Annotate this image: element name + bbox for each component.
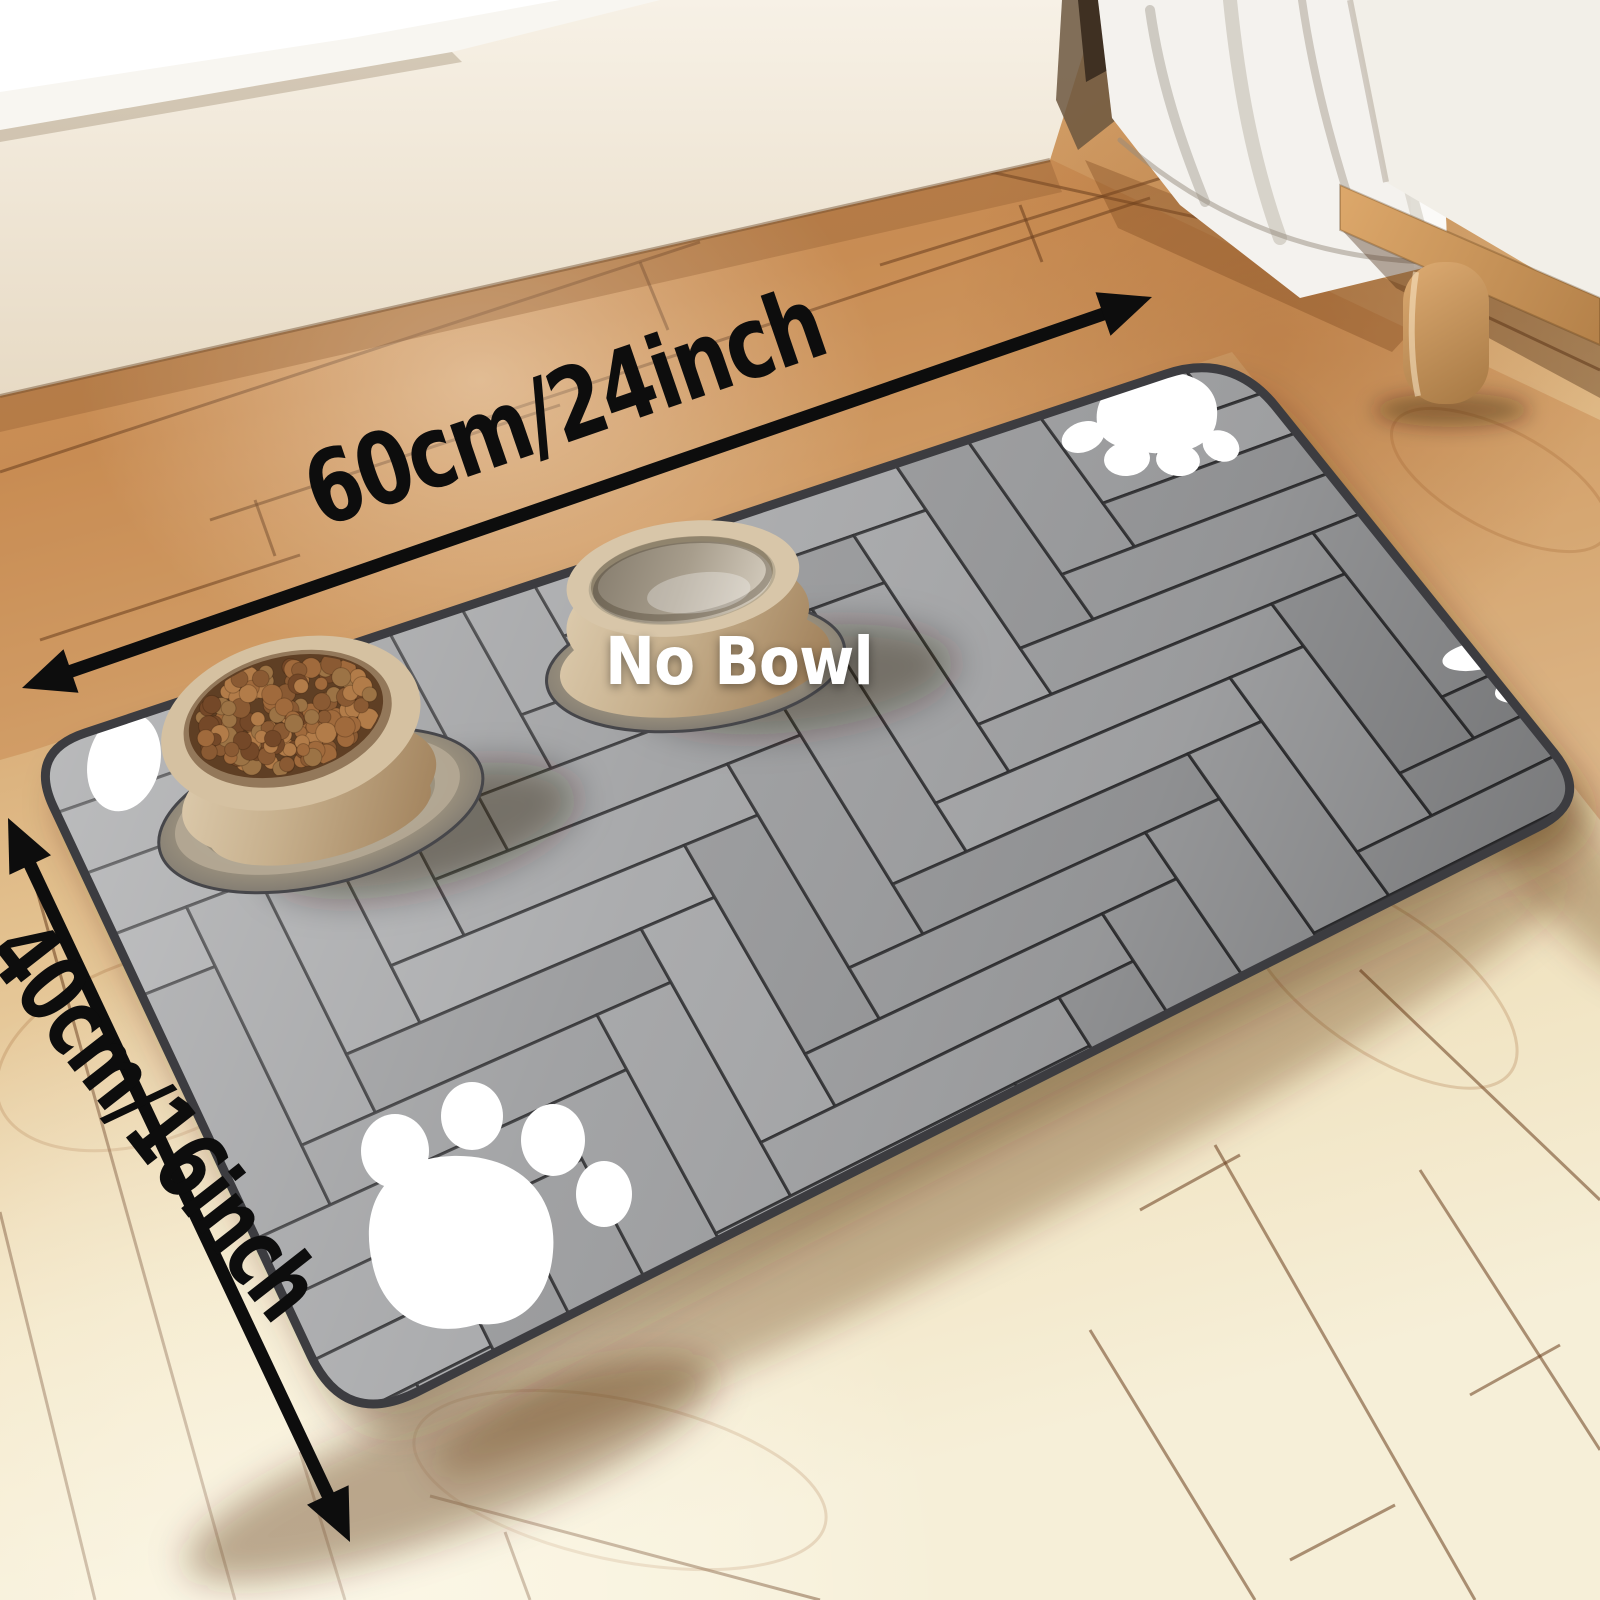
no-bowl-label: No Bowl (605, 623, 873, 700)
product-photo-scene: 60cm/24inch 40cm/16inch No Bowl (0, 0, 1600, 1600)
